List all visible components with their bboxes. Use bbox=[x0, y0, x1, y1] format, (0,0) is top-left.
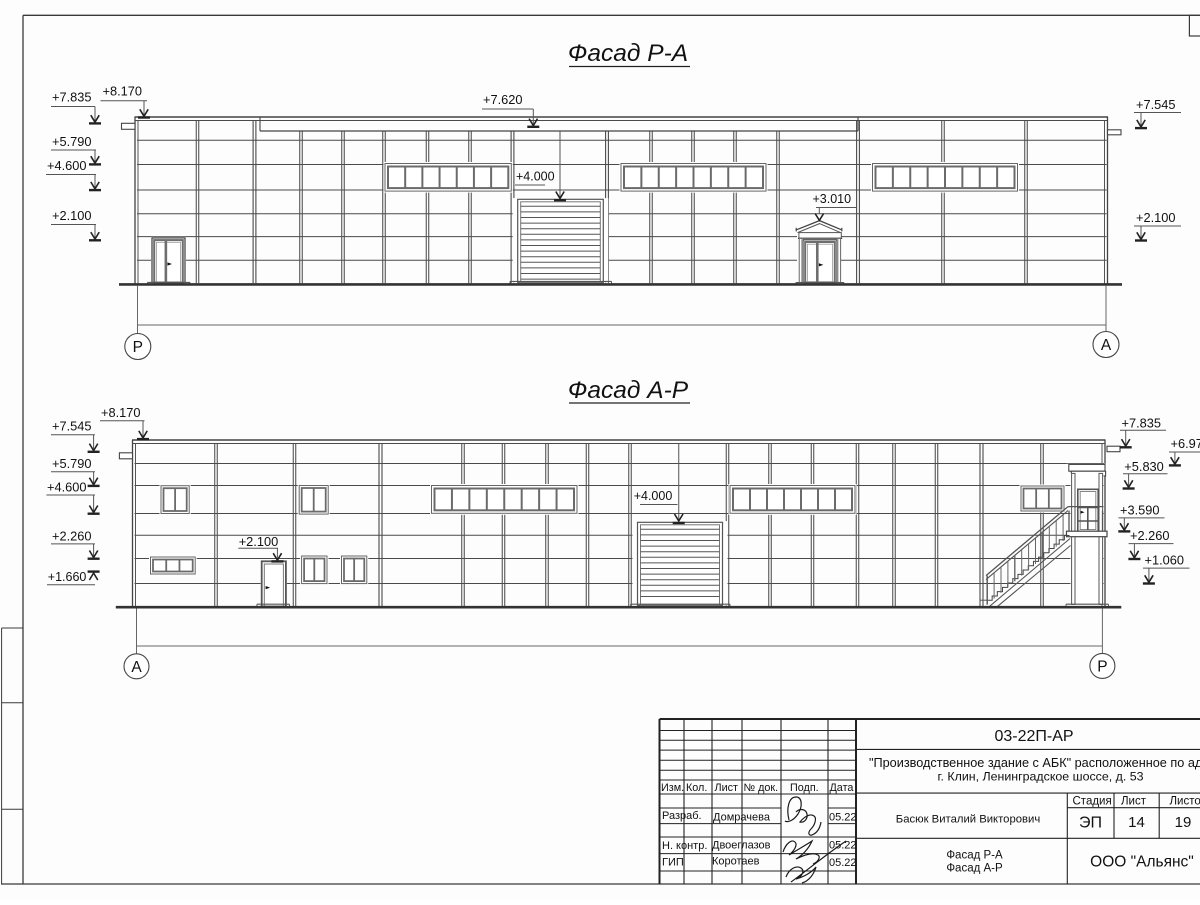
svg-text:+2.260: +2.260 bbox=[1130, 528, 1170, 543]
svg-text:+7.545: +7.545 bbox=[1136, 97, 1176, 112]
svg-text:Дата: Дата bbox=[830, 782, 854, 794]
svg-text:+4.600: +4.600 bbox=[47, 158, 87, 173]
svg-text:+2.100: +2.100 bbox=[52, 208, 92, 223]
svg-text:Разраб.: Разраб. bbox=[662, 810, 702, 822]
svg-text:05.22: 05.22 bbox=[829, 857, 857, 869]
svg-text:14: 14 bbox=[1128, 814, 1145, 831]
svg-text:Фасад А-Р: Фасад А-Р bbox=[946, 863, 1003, 875]
svg-text:Домрачева: Домрачева bbox=[713, 812, 771, 824]
svg-text:Р: Р bbox=[133, 339, 143, 356]
svg-text:+5.790: +5.790 bbox=[52, 134, 92, 149]
svg-text:+2.100: +2.100 bbox=[239, 534, 279, 549]
svg-text:А: А bbox=[131, 659, 142, 676]
svg-text:+1.060: +1.060 bbox=[1145, 553, 1185, 568]
svg-text:ООО "Альянс": ООО "Альянс" bbox=[1090, 854, 1194, 871]
svg-text:19: 19 bbox=[1175, 814, 1192, 831]
svg-text:Н. контр.: Н. контр. bbox=[662, 840, 707, 852]
svg-text:+7.835: +7.835 bbox=[1122, 416, 1162, 431]
svg-text:+2.100: +2.100 bbox=[1136, 210, 1176, 225]
svg-text:+7.835: +7.835 bbox=[52, 90, 92, 105]
svg-text:Коротаев: Коротаев bbox=[712, 856, 760, 868]
svg-text:+2.260: +2.260 bbox=[52, 528, 92, 543]
svg-text:+7.620: +7.620 bbox=[483, 92, 523, 107]
svg-text:№ док.: № док. bbox=[744, 782, 779, 794]
svg-text:Подп.: Подп. bbox=[790, 782, 819, 794]
svg-text:+7.545: +7.545 bbox=[52, 419, 92, 434]
svg-text:+8.170: +8.170 bbox=[103, 84, 143, 99]
svg-text:Фасад А-Р: Фасад А-Р bbox=[568, 377, 689, 404]
svg-text:Р: Р bbox=[1097, 658, 1107, 675]
svg-text:А: А bbox=[1101, 337, 1112, 354]
svg-text:+4.000: +4.000 bbox=[516, 170, 555, 184]
svg-text:03-22П-АР: 03-22П-АР bbox=[994, 728, 1073, 745]
svg-text:Двоеглазов: Двоеглазов bbox=[712, 840, 771, 852]
svg-text:+1.660: +1.660 bbox=[48, 570, 87, 584]
svg-text:г. Клин, Ленинградское шоссе,: г. Клин, Ленинградское шоссе, д. 53 bbox=[938, 770, 1144, 784]
svg-text:Фасад Р-А: Фасад Р-А bbox=[568, 40, 688, 67]
svg-text:+4.600: +4.600 bbox=[47, 480, 87, 495]
svg-text:Фасад Р-А: Фасад Р-А bbox=[946, 850, 1003, 862]
svg-text:+3.590: +3.590 bbox=[1120, 503, 1160, 518]
svg-text:Басюк Виталий Викторович: Басюк Виталий Викторович bbox=[896, 814, 1041, 826]
svg-text:Лист: Лист bbox=[1121, 796, 1147, 808]
svg-text:Листов: Листов bbox=[1170, 796, 1200, 808]
svg-text:"Производственное здание с АБК: "Производственное здание с АБК" располож… bbox=[869, 756, 1200, 770]
svg-text:+8.170: +8.170 bbox=[101, 405, 141, 420]
svg-text:05.22: 05.22 bbox=[829, 812, 857, 824]
svg-text:+5.790: +5.790 bbox=[52, 456, 92, 471]
svg-text:+3.010: +3.010 bbox=[813, 192, 852, 206]
svg-text:+6.97: +6.97 bbox=[1171, 436, 1200, 451]
svg-text:Стадия: Стадия bbox=[1073, 796, 1112, 808]
svg-text:ГИП: ГИП bbox=[662, 857, 684, 869]
svg-text:Изм.: Изм. bbox=[661, 782, 684, 794]
svg-text:Лист: Лист bbox=[715, 782, 739, 794]
svg-text:+5.830: +5.830 bbox=[1124, 459, 1164, 474]
svg-text:ЭП: ЭП bbox=[1079, 815, 1102, 832]
svg-text:+4.000: +4.000 bbox=[634, 489, 673, 503]
svg-text:Кол.: Кол. bbox=[686, 782, 707, 794]
